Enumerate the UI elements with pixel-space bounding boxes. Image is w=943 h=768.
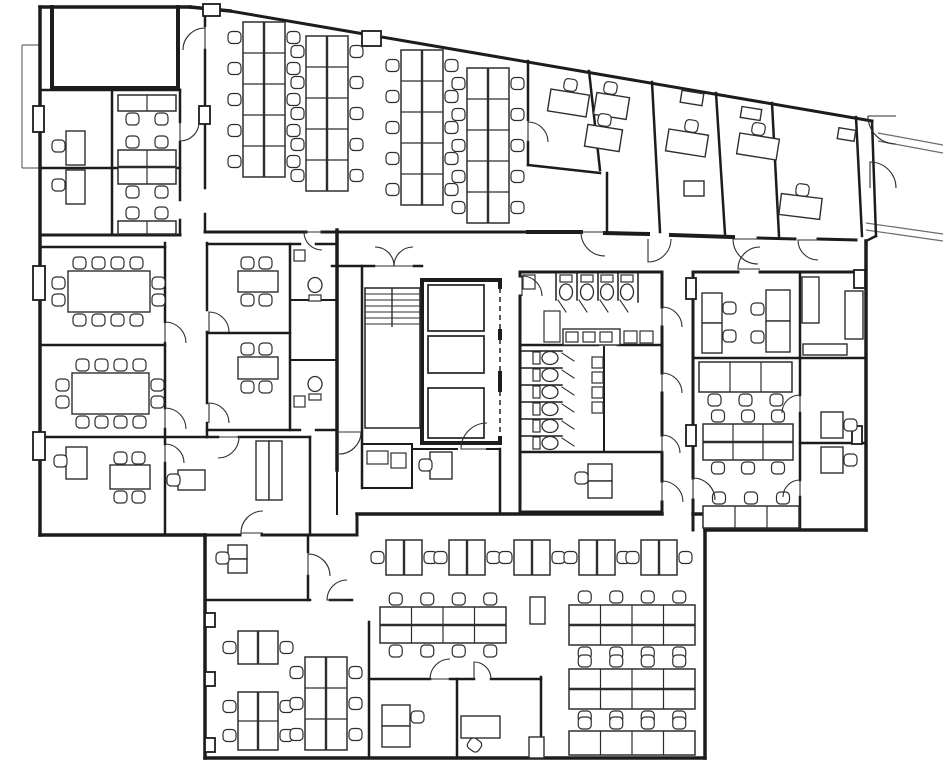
chair (484, 645, 497, 657)
chair (349, 667, 362, 679)
radiator (740, 107, 761, 121)
chair (52, 294, 65, 306)
chair (673, 655, 686, 667)
chair (421, 645, 434, 657)
chair (712, 462, 725, 474)
chair (291, 108, 304, 120)
sink-fixture (367, 451, 388, 464)
chair (291, 46, 304, 58)
desk (66, 131, 85, 165)
chair (132, 452, 145, 464)
chair (419, 459, 432, 471)
chair (114, 416, 127, 428)
chair (742, 462, 755, 474)
chair (578, 655, 591, 667)
wall (605, 233, 648, 234)
chair (241, 294, 254, 306)
sink-fixture (566, 332, 578, 342)
chair (511, 109, 524, 121)
chair (349, 698, 362, 710)
chair (564, 552, 577, 564)
desk (779, 194, 822, 220)
chair (223, 730, 236, 742)
toilet (560, 284, 573, 300)
chair (552, 552, 565, 564)
chair (641, 717, 654, 729)
chair (610, 717, 623, 729)
toilet-tank (560, 275, 572, 282)
toilet-tank (581, 275, 593, 282)
toilet-tank (533, 420, 540, 432)
chair (452, 140, 465, 152)
column (199, 106, 210, 124)
chair (92, 257, 105, 269)
chair (228, 156, 241, 168)
chair (597, 113, 612, 127)
chair (73, 257, 86, 269)
chair (751, 303, 764, 315)
toilet (542, 403, 558, 416)
chair (511, 202, 524, 214)
sink-fixture (640, 331, 653, 343)
chair (76, 416, 89, 428)
toilet (542, 352, 558, 365)
toilet-tank (533, 403, 540, 415)
cabinet (256, 441, 269, 500)
toilet (308, 377, 322, 392)
chair (228, 125, 241, 137)
chair (739, 394, 752, 406)
column (205, 738, 215, 752)
toilet (542, 369, 558, 382)
sink-fixture (544, 311, 560, 342)
column (205, 613, 215, 627)
chair (54, 455, 67, 467)
chair (445, 60, 458, 72)
chair (290, 698, 303, 710)
chair (452, 202, 465, 214)
chair (742, 410, 755, 422)
cabinet (529, 737, 544, 758)
chair (389, 593, 402, 605)
desk (66, 447, 87, 479)
chair (216, 552, 229, 564)
column (205, 672, 215, 686)
chair (708, 394, 721, 406)
desk (702, 323, 722, 353)
elevator-car (428, 336, 484, 373)
chair (575, 472, 588, 484)
reception-desk (430, 452, 452, 479)
desk (821, 412, 843, 438)
chair (111, 314, 124, 326)
chair (259, 343, 272, 355)
chair (155, 207, 168, 219)
chair (673, 717, 686, 729)
toilet (601, 284, 614, 300)
chair (386, 184, 399, 196)
cabinet (684, 181, 704, 196)
toilet-tank (533, 369, 540, 381)
chair (280, 642, 293, 654)
cabinet (803, 344, 847, 355)
chair (228, 32, 241, 44)
toilet-tank (621, 275, 633, 282)
chair (155, 186, 168, 198)
sink-fixture (624, 331, 637, 343)
chair (151, 396, 164, 408)
chair (386, 153, 399, 165)
chair (52, 140, 65, 152)
chair (52, 179, 65, 191)
chair (130, 314, 143, 326)
column (33, 106, 44, 132)
chair (371, 552, 384, 564)
desk (584, 124, 622, 151)
desk (382, 705, 410, 726)
chair (287, 32, 300, 44)
chair (673, 591, 686, 603)
toilet-tank (309, 295, 321, 301)
chair (259, 381, 272, 393)
chair (287, 156, 300, 168)
chair (603, 81, 618, 95)
desk (588, 481, 612, 498)
sink-fixture (583, 332, 595, 342)
chair (111, 257, 124, 269)
chair (167, 474, 180, 486)
chair (228, 63, 241, 75)
column (33, 266, 45, 300)
chair (499, 552, 512, 564)
chair (389, 645, 402, 657)
sink-fixture (592, 372, 603, 383)
toilet (621, 284, 634, 300)
desk (228, 545, 247, 559)
radiator (837, 128, 856, 142)
chair (452, 78, 465, 90)
chair (350, 46, 363, 58)
chair (132, 491, 145, 503)
chair (445, 184, 458, 196)
conference-table (72, 373, 149, 414)
sink-fixture (294, 250, 305, 261)
chair (411, 711, 424, 723)
chair (350, 77, 363, 89)
chair (578, 591, 591, 603)
chair (844, 454, 857, 466)
chair (795, 183, 809, 196)
chair (152, 277, 165, 289)
chair (772, 462, 785, 474)
chair (151, 379, 164, 391)
chair (114, 359, 127, 371)
sink-fixture (600, 332, 612, 342)
chair (155, 136, 168, 148)
chair (223, 642, 236, 654)
column (33, 432, 45, 460)
chair (259, 257, 272, 269)
desk (588, 464, 612, 481)
chair (511, 171, 524, 183)
floor-plan-document (0, 0, 943, 768)
chair (52, 277, 65, 289)
chair (92, 314, 105, 326)
chair (241, 257, 254, 269)
desk (702, 293, 722, 323)
sink-fixture (592, 387, 603, 398)
chair (679, 552, 692, 564)
chair (626, 552, 639, 564)
chair (155, 113, 168, 125)
chair (770, 394, 783, 406)
chair (290, 667, 303, 679)
sink-fixture (592, 357, 603, 368)
chair (452, 645, 465, 657)
desk (382, 726, 410, 747)
desk-bench (703, 506, 799, 528)
chair (126, 113, 139, 125)
chair (386, 60, 399, 72)
chair (349, 729, 362, 741)
chair (563, 78, 578, 92)
cabinet (269, 441, 282, 500)
chair (152, 294, 165, 306)
chair (386, 91, 399, 103)
chair (751, 122, 766, 136)
chair (95, 416, 108, 428)
chair (751, 331, 764, 343)
elevator-car (428, 285, 484, 331)
chair (291, 170, 304, 182)
chair (723, 302, 736, 314)
meeting-table (110, 465, 150, 489)
chair (95, 359, 108, 371)
elevator-car (428, 388, 484, 438)
conference-table (68, 271, 150, 312)
chair (290, 729, 303, 741)
wall (671, 235, 733, 237)
column (362, 31, 381, 46)
toilet (308, 278, 322, 293)
toilet (542, 386, 558, 399)
chair (76, 359, 89, 371)
toilet-tank (601, 275, 613, 282)
floor-plan (0, 0, 943, 768)
chair (56, 396, 69, 408)
chair (126, 186, 139, 198)
chair (712, 410, 725, 422)
wall (758, 238, 795, 239)
chair (259, 294, 272, 306)
chair (223, 701, 236, 713)
chair (126, 207, 139, 219)
cabinet (802, 277, 819, 323)
meeting-table (238, 271, 278, 292)
chair (114, 491, 127, 503)
toilet (542, 420, 558, 433)
chair (228, 94, 241, 106)
meeting-table (238, 357, 278, 379)
chair (684, 119, 699, 133)
desk (821, 447, 843, 473)
chair (511, 78, 524, 90)
desk (461, 716, 500, 738)
chair (487, 552, 500, 564)
chair (287, 94, 300, 106)
desk (66, 170, 85, 204)
chair (452, 593, 465, 605)
column (854, 270, 865, 288)
chair (511, 140, 524, 152)
chair (445, 153, 458, 165)
chair (610, 591, 623, 603)
cabinet (530, 597, 545, 624)
chair (452, 109, 465, 121)
desk (766, 290, 790, 321)
chair (287, 63, 300, 75)
chair (745, 492, 758, 504)
chair (641, 591, 654, 603)
wall (818, 239, 856, 240)
sink-fixture (592, 402, 603, 413)
chair (287, 125, 300, 137)
desk (228, 559, 247, 573)
chair (578, 717, 591, 729)
toilet (581, 284, 594, 300)
column (203, 4, 220, 16)
chair (291, 139, 304, 151)
chair (126, 136, 139, 148)
chair (421, 593, 434, 605)
chair (350, 139, 363, 151)
column (686, 425, 696, 446)
toilet-tank (533, 437, 540, 449)
chair (434, 552, 447, 564)
toilet-tank (533, 386, 540, 398)
chair (844, 419, 857, 431)
toilet (542, 437, 558, 450)
chair (133, 416, 146, 428)
column (686, 278, 696, 299)
desk (178, 470, 205, 490)
chair (241, 381, 254, 393)
radiator (680, 90, 704, 105)
toilet-tank (309, 394, 321, 400)
cabinet (845, 291, 863, 339)
chair (133, 359, 146, 371)
sink-fixture (294, 396, 305, 407)
chair (484, 593, 497, 605)
chair (723, 330, 736, 342)
chair (452, 171, 465, 183)
chair (130, 257, 143, 269)
chair (73, 314, 86, 326)
chair (350, 108, 363, 120)
toilet-tank (533, 352, 540, 364)
desk (766, 321, 790, 352)
chair (386, 122, 399, 134)
chair (291, 77, 304, 89)
chair (350, 170, 363, 182)
chair (114, 452, 127, 464)
chair (641, 655, 654, 667)
chair (56, 379, 69, 391)
desk-bench (699, 362, 792, 392)
chair (445, 122, 458, 134)
chair (241, 343, 254, 355)
chair (610, 655, 623, 667)
chair (445, 91, 458, 103)
sink-fixture (391, 453, 406, 468)
